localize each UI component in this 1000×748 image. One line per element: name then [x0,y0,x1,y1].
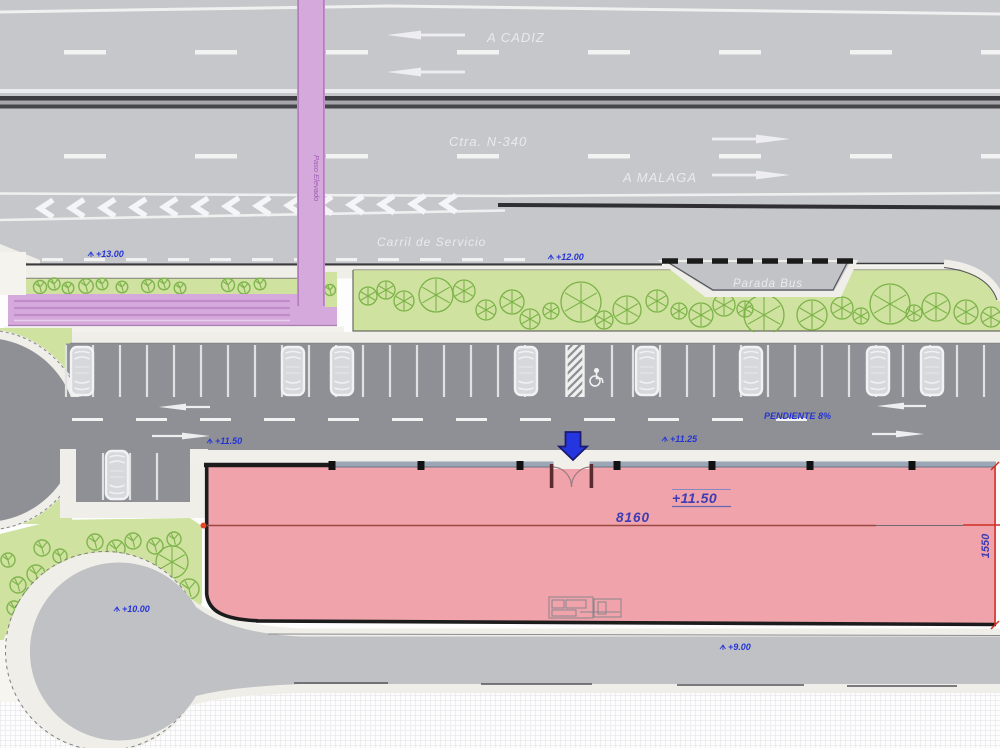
svg-text:+9.00: +9.00 [728,642,751,652]
svg-text:Parada Bus: Parada Bus [733,278,803,290]
svg-text:8160: 8160 [616,510,650,525]
svg-text:A CADIZ: A CADIZ [486,30,545,45]
svg-text:Ctra. N-340: Ctra. N-340 [449,134,527,149]
svg-text:+12.00: +12.00 [556,252,584,262]
svg-text:Paso Elevado: Paso Elevado [312,155,321,201]
svg-text:+10.00: +10.00 [122,604,150,614]
svg-text:+11.50: +11.50 [215,436,242,446]
svg-text:Carril de Servicio: Carril de Servicio [377,235,486,249]
svg-text:+13.00: +13.00 [96,249,124,259]
svg-text:A MALAGA: A MALAGA [622,170,697,185]
svg-text:PENDIENTE 8%: PENDIENTE 8% [764,411,831,421]
svg-text:+11.25: +11.25 [670,434,698,444]
svg-text:1550: 1550 [980,533,992,558]
svg-text:+11.50: +11.50 [672,490,717,506]
